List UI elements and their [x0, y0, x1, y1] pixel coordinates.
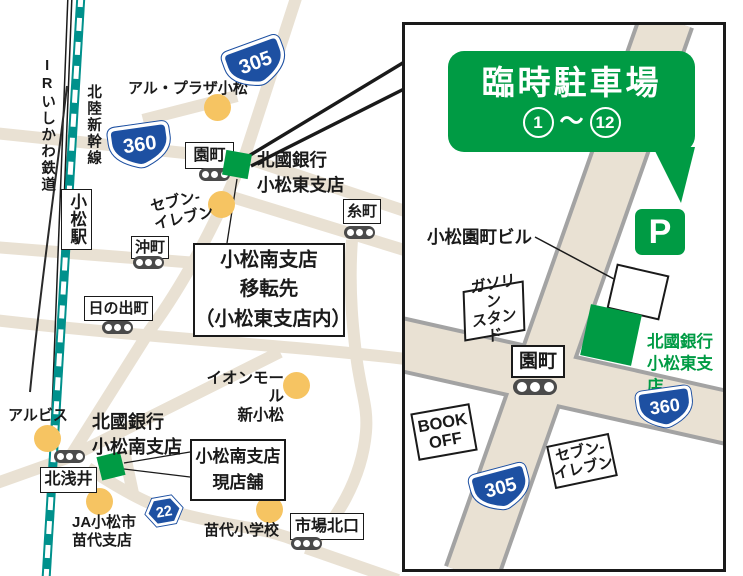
callout-relocation: 小松南支店 移転先 （小松東支店内） [193, 243, 345, 337]
svg-text:360: 360 [648, 395, 681, 419]
inset-signal-label-sonomachi: 園町 [511, 345, 565, 378]
circled-number-end: 12 [590, 107, 621, 138]
signal-label-hinodemachi: 日の出町 [84, 296, 153, 321]
poi-label-aeonmall: イオンモール 新小松 [200, 370, 284, 425]
poi-dot-aeonmall [283, 372, 310, 399]
svg-text:360: 360 [122, 132, 158, 158]
shinkansen-label: 北陸新幹線 [84, 84, 101, 204]
inset-detail-map: 臨時駐車場 1 〜 12 P 小松園町ビル 北國銀行 小松東支店 ガソリン スタ… [402, 22, 726, 572]
callout-current-store: 小松南支店 現店舗 [190, 439, 286, 501]
access-map: IRいしかわ鉄道 北陸新幹線 小松駅 アル・プラザ小松 セブン- イレブン イオ… [0, 0, 743, 576]
poi-label-ja: JA小松市 苗代支店 [72, 514, 136, 549]
temporary-parking-banner: 臨時駐車場 1 〜 12 [448, 51, 695, 152]
traffic-light-hinodemachi [102, 321, 133, 334]
poi-label-albis: アルビス [8, 407, 68, 425]
poi-dot-alplaza [204, 94, 231, 121]
inset-traffic-light-sonomachi [513, 379, 557, 395]
bookoff-box: BOOK OFF [410, 403, 477, 461]
ir-line-label: IRいしかわ鉄道 [38, 58, 55, 238]
route-badge-22: 22 [142, 492, 187, 530]
signal-label-ichiba-kitaguchi: 市場北口 [290, 513, 364, 540]
traffic-light-okimachi [133, 256, 164, 269]
bank-label-komatsu-south: 北國銀行 小松南支店 [92, 410, 182, 460]
traffic-light-ichiba-kitaguchi [291, 537, 322, 550]
parking-icon: P [635, 209, 685, 255]
bank-building-green [580, 304, 642, 366]
inset-border-gap [402, 66, 406, 89]
poi-dot-albis [34, 425, 61, 452]
banner-tail [651, 145, 697, 207]
signal-label-itomachi: 糸町 [343, 199, 381, 224]
gas-station-box: ガソリン スタンド [463, 280, 526, 341]
svg-text:22: 22 [155, 503, 174, 522]
sonomachi-building-label: 小松園町ビル [427, 227, 532, 248]
range-tilde: 〜 [560, 110, 584, 134]
banner-range: 1 〜 12 [523, 107, 621, 138]
inset-route-badge-360: 360 [633, 383, 696, 433]
traffic-light-itomachi [344, 226, 375, 239]
poi-label-nawashiro-school: 苗代小学校 [204, 522, 279, 540]
bank-marker-komatsu-east [222, 150, 252, 179]
circled-number-start: 1 [523, 107, 554, 138]
traffic-light-kitaasai [54, 450, 85, 463]
bank-label-komatsu-east: 北國銀行 小松東支店 [257, 148, 345, 197]
komatsu-station-label: 小松駅 [61, 189, 92, 250]
route-badge-360: 360 [105, 119, 175, 173]
banner-title: 臨時駐車場 [482, 66, 662, 99]
signal-label-kitaasai: 北浅井 [40, 467, 97, 493]
